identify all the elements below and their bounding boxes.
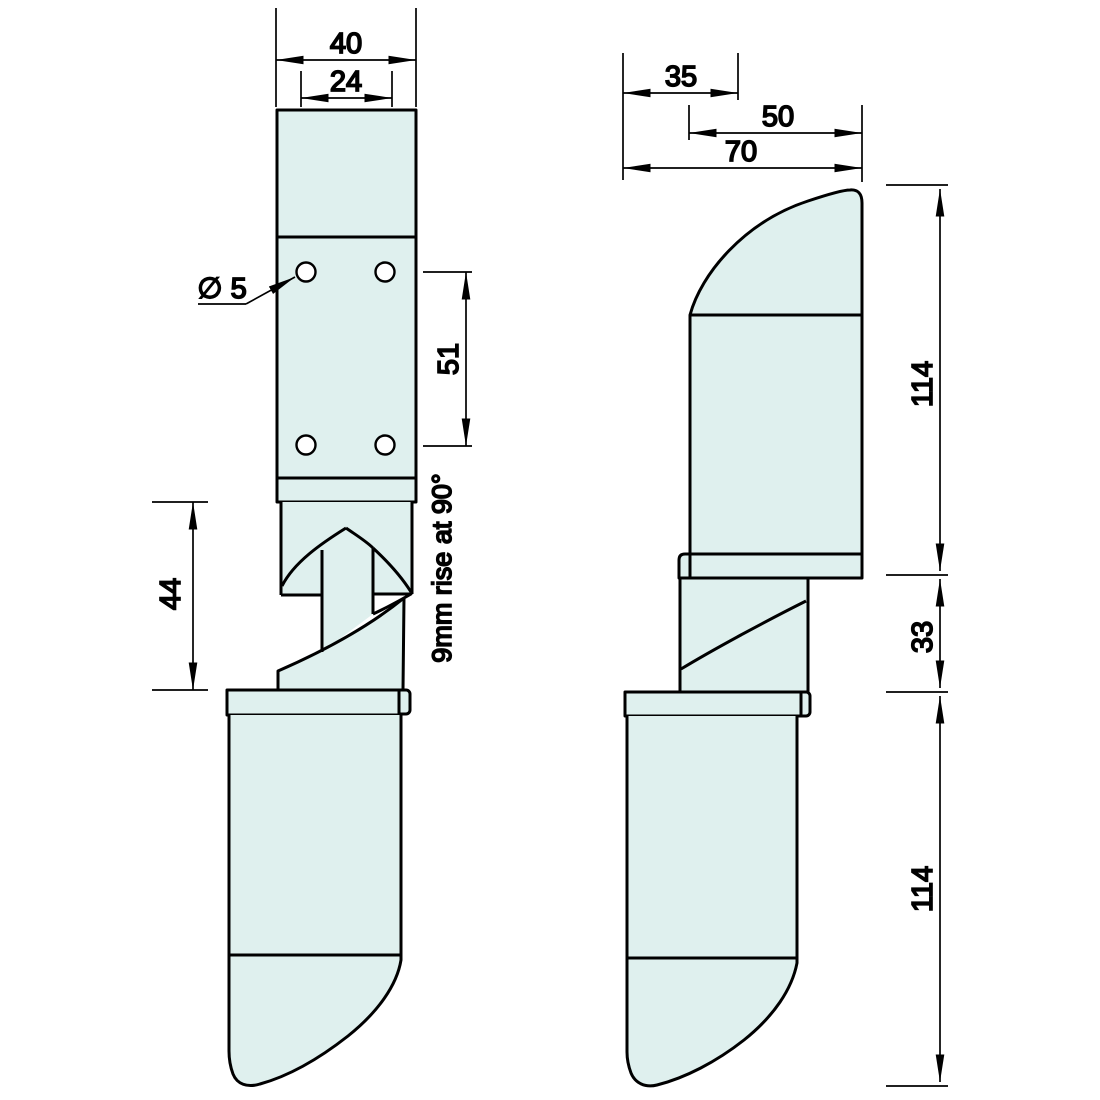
dim-hole-spacing-x: 24 xyxy=(301,66,392,107)
dim-flap-offset: 35 xyxy=(623,53,738,180)
side-knuckle xyxy=(680,578,808,692)
side-top-collar xyxy=(679,554,862,578)
dim-label-33: 33 xyxy=(907,621,939,653)
dim-label-24: 24 xyxy=(330,66,362,98)
dim-label-114-top: 114 xyxy=(907,361,939,407)
dim-label-50: 50 xyxy=(762,101,794,133)
front-bottom-blade xyxy=(229,955,401,1086)
drawing-canvas: 40 24 ∅ 5 51 xyxy=(0,0,1100,1100)
front-bottom-body xyxy=(229,715,401,955)
side-view-part xyxy=(625,190,862,1086)
dim-label-44: 44 xyxy=(155,578,187,610)
dim-overall-depth: 70 xyxy=(623,136,862,168)
dim-label-40: 40 xyxy=(330,28,362,60)
side-view: 35 50 70 114 xyxy=(623,53,948,1086)
dim-label-114-bottom: 114 xyxy=(907,866,939,912)
screw-hole-bottom-left xyxy=(297,436,316,455)
dim-label-70: 70 xyxy=(725,136,757,168)
side-top-flap xyxy=(690,190,862,554)
front-view-part xyxy=(227,110,416,1086)
front-top-cap xyxy=(277,110,416,237)
front-bottom-collar xyxy=(227,690,399,715)
screw-hole-bottom-right xyxy=(376,436,395,455)
rise-note: 9mm rise at 90° xyxy=(427,473,457,662)
dim-label-51: 51 xyxy=(433,343,465,375)
front-knuckle-neck xyxy=(281,502,412,595)
screw-hole-top-right xyxy=(376,263,395,282)
side-bottom-collar xyxy=(625,692,801,716)
dim-label-35: 35 xyxy=(665,61,697,93)
dim-hole-spacing-y: 51 xyxy=(423,272,472,446)
hinge-technical-drawing: 40 24 ∅ 5 51 xyxy=(0,0,1100,1100)
dim-lower-flap-height: 114 xyxy=(886,692,948,1086)
dim-upper-flap-height: 114 xyxy=(886,185,948,575)
screw-hole-top-left xyxy=(297,263,316,282)
dim-knuckle-height-side: 33 xyxy=(907,579,940,688)
front-plate-band xyxy=(277,478,416,502)
side-bottom-blade xyxy=(627,958,797,1086)
dim-knuckle-height-front: 44 xyxy=(152,502,208,690)
front-view: 40 24 ∅ 5 51 xyxy=(152,8,472,1086)
side-bottom-body xyxy=(627,716,797,958)
hole-dia-label: ∅ 5 xyxy=(197,273,246,305)
dim-flap-width: 50 xyxy=(689,101,862,182)
